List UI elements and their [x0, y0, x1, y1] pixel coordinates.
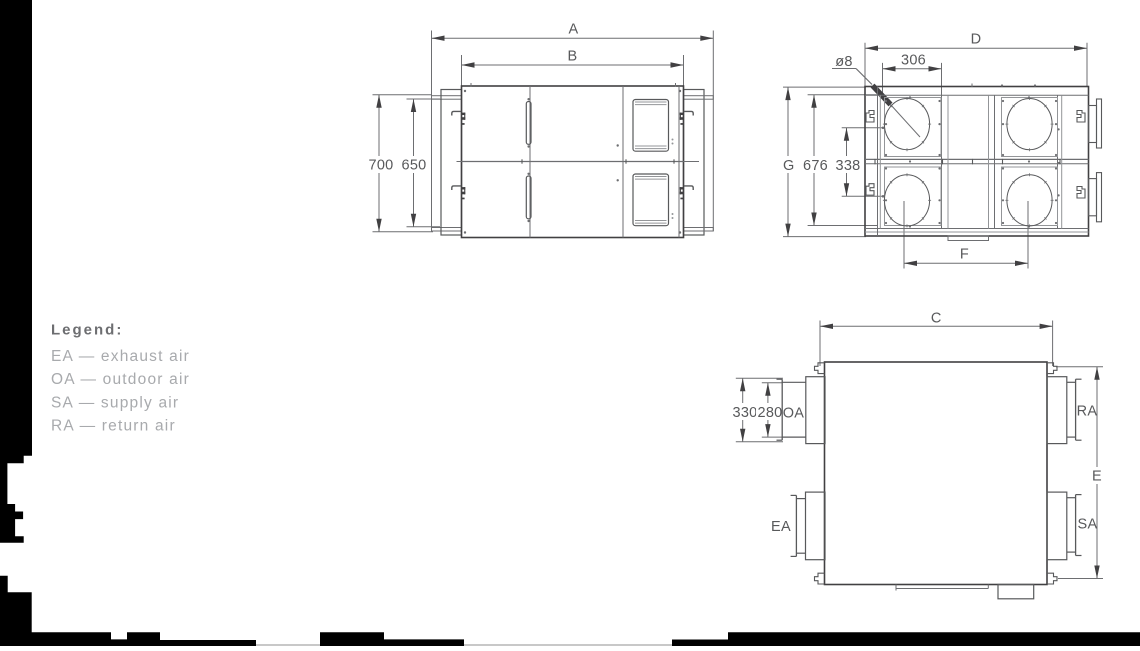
svg-text:RA — return air: RA — return air [51, 418, 176, 435]
svg-text:700: 700 [368, 158, 393, 174]
svg-text:OA — outdoor air: OA — outdoor air [51, 371, 190, 388]
svg-text:D: D [971, 32, 982, 48]
svg-text:SA: SA [1078, 517, 1098, 533]
svg-text:EA: EA [771, 519, 791, 535]
svg-text:Legend:: Legend: [51, 322, 123, 339]
svg-text:B: B [568, 49, 578, 65]
svg-text:OA: OA [783, 406, 805, 422]
svg-text:330: 330 [732, 405, 757, 421]
svg-text:C: C [931, 311, 942, 327]
svg-text:G: G [783, 158, 795, 174]
svg-text:A: A [569, 22, 579, 38]
svg-text:676: 676 [803, 158, 828, 174]
svg-text:338: 338 [835, 158, 860, 174]
svg-text:280: 280 [757, 405, 782, 421]
svg-text:306: 306 [901, 53, 926, 69]
svg-text:RA: RA [1077, 404, 1098, 420]
svg-text:SA — supply air: SA — supply air [51, 394, 179, 411]
svg-text:F: F [960, 247, 969, 263]
svg-text:E: E [1092, 469, 1102, 485]
svg-text:ø8: ø8 [835, 54, 853, 70]
svg-text:EA — exhaust air: EA — exhaust air [51, 348, 190, 365]
svg-text:650: 650 [401, 158, 426, 174]
